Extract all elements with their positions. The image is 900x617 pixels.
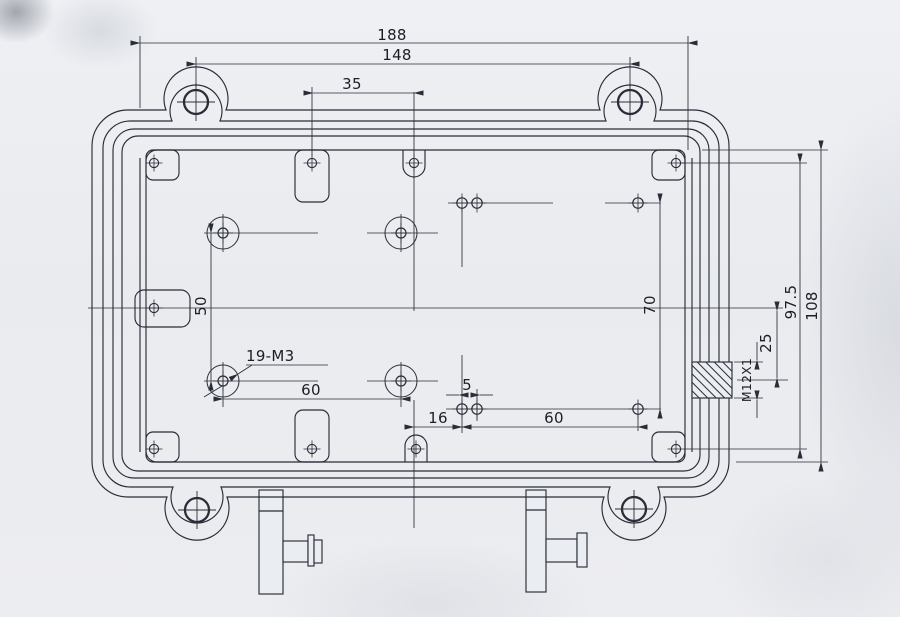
corner-screw-top-left (146, 155, 163, 172)
tapped-bosses (207, 217, 417, 397)
corner-screw-bottom-left (146, 441, 163, 458)
mounting-hole-bottom-left (178, 491, 216, 529)
gland-hatch-block (692, 362, 732, 398)
leader-tail (204, 386, 222, 397)
dim-label-pair-gap: 5 (462, 376, 472, 394)
gland-thread-label: M12X1 (739, 358, 754, 402)
dim-label-gland-offset: 25 (757, 333, 775, 353)
dim-label-lug-spacing: 148 (382, 46, 412, 64)
dim-label-hole-spacing-v: 70 (641, 295, 659, 315)
left-side-pocket (135, 290, 190, 327)
dim-label-overall-width: 188 (377, 26, 407, 44)
small-holes (453, 194, 648, 419)
engineering-drawing-canvas: 188 148 35 50 19-M3 60 16 5 60 70 25 M12… (0, 0, 900, 617)
cable-gland-section (692, 362, 732, 398)
bottom-protrusions (259, 490, 587, 594)
pocket-screw (408, 441, 425, 458)
corner-screw-bosses (146, 150, 686, 462)
mounting-hole-bottom-right (615, 490, 653, 528)
left-bracket-with-connector (259, 490, 322, 594)
edge-pockets (135, 150, 427, 462)
leader-arrow (238, 365, 252, 374)
pocket-screw (304, 155, 321, 172)
corner-screw-bottom-right (668, 441, 685, 458)
inner-floor-edge (146, 150, 685, 462)
dim-label-hole-offset: 16 (428, 409, 448, 427)
dim-label-body-height: 108 (803, 291, 821, 321)
dim-label-boss-horizontal: 60 (301, 381, 321, 399)
case-outline (92, 67, 729, 540)
right-bracket-with-connector (526, 490, 587, 592)
case-outer-edge (92, 67, 729, 540)
dim-label-boss-vertical: 50 (192, 296, 210, 316)
tap-callout-label: 19-M3 (246, 347, 295, 365)
dim-label-pocket-offset: 35 (342, 75, 362, 93)
dim-label-hole-spacing-h: 60 (544, 409, 564, 427)
dim-label-screw-spacing: 97.5 (782, 285, 800, 320)
scanned-drawing-page: 188 148 35 50 19-M3 60 16 5 60 70 25 M12… (0, 0, 900, 617)
pocket-screw (304, 441, 321, 458)
